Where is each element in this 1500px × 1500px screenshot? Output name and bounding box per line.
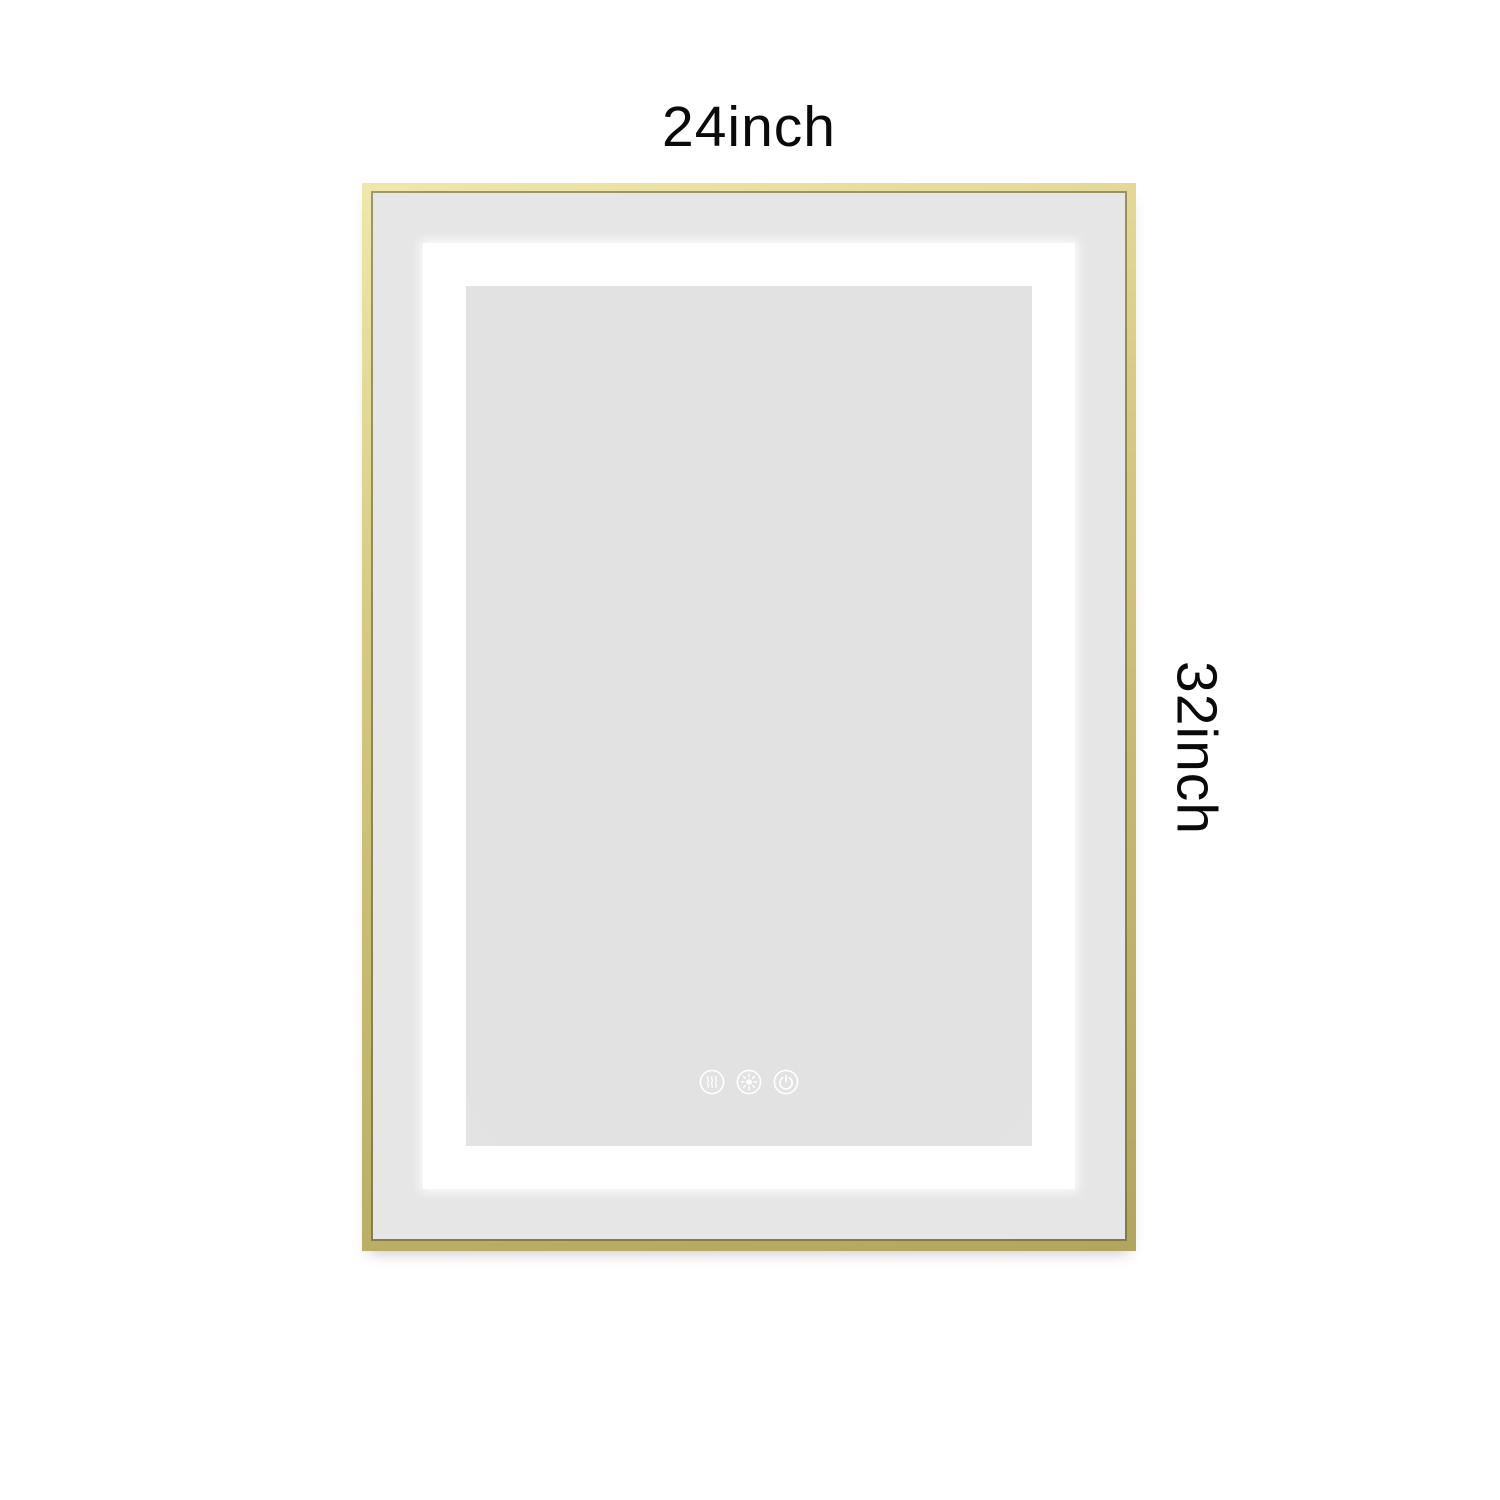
- power-icon: [773, 1069, 799, 1095]
- mirror-frosted-border: [373, 193, 1125, 1239]
- touch-control-panel: [699, 1069, 799, 1095]
- mirror-gold-frame: [362, 183, 1136, 1251]
- power-button: [773, 1069, 799, 1095]
- product-dimension-image: 24inch 32inch: [0, 0, 1500, 1500]
- width-dimension-label: 24inch: [662, 99, 836, 156]
- brightness-icon: [736, 1069, 762, 1095]
- defog-icon: [699, 1069, 725, 1095]
- defog-button: [699, 1069, 725, 1095]
- height-dimension-label: 32inch: [1168, 661, 1225, 835]
- brightness-button: [736, 1069, 762, 1095]
- led-light-band: [423, 243, 1075, 1189]
- mirror-surface: [466, 286, 1032, 1146]
